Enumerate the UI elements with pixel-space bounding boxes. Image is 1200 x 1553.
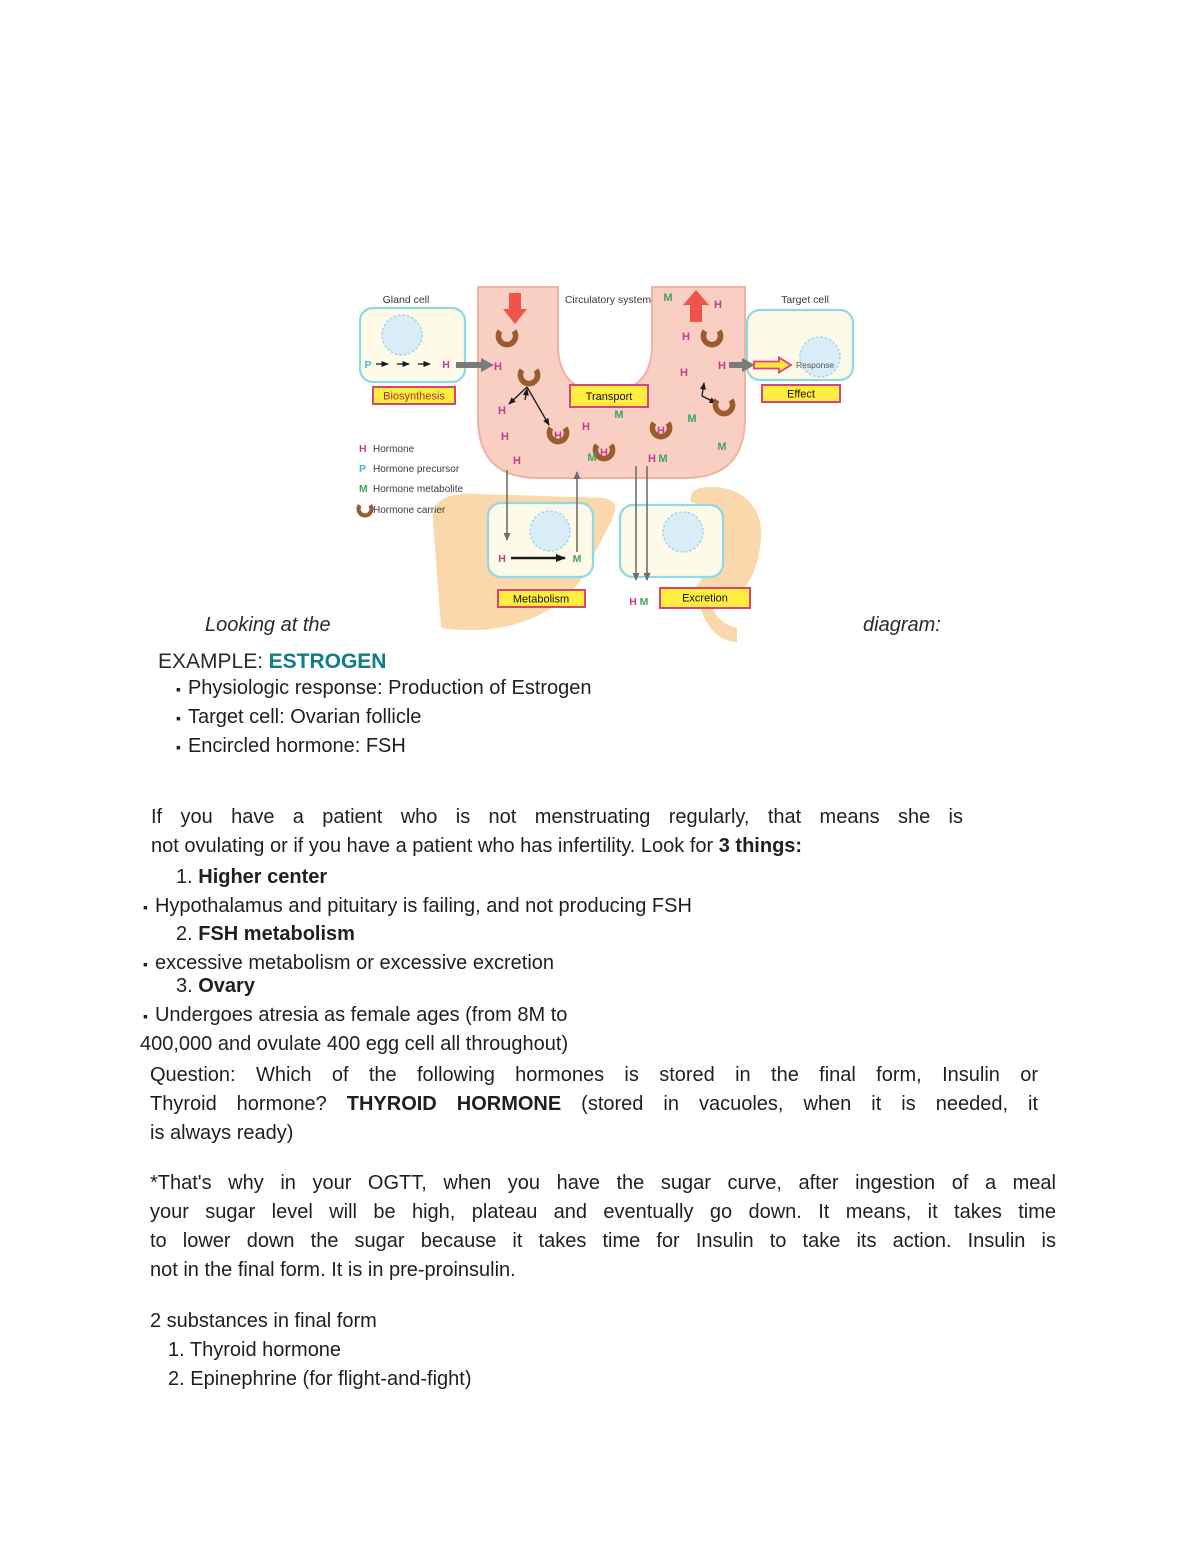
question-line-2: Thyroid hormone? THYROID HORMONE (stored… [150,1093,1038,1122]
gland-cell-nucleus [382,315,422,355]
target-cell-label: Target cell [781,294,829,306]
tube-letter-h: H [648,453,656,465]
example-bullet-2-text: Target cell: Ovarian follicle [188,706,421,728]
excretion-cell-nucleus [663,512,703,552]
list-item-higher-center: 1. Higher center [176,863,327,892]
precursor-letter: P [364,359,371,371]
effect-label: Effect [787,389,815,401]
bullet-marker: ▪ [176,739,188,755]
tube-letter-h: H [498,405,506,417]
final-form-item-2: 2. Epinephrine (for flight-and-fight) [168,1365,472,1394]
tube-letter-h: H [600,447,608,459]
legend-hormone-label: Hormone [373,444,415,455]
metabolism-box: Metabolism [498,590,585,607]
tube-letter-h: H [714,299,722,311]
target-cell-nucleus [800,337,840,377]
hormone-carrier-icon [359,505,372,515]
intro-line-2: not ovulating or if you have a patient w… [151,835,963,864]
thyroid-hormone-bold: THYROID HORMONE [347,1093,561,1115]
caption-right: diagram: [863,614,941,637]
excretion-box: Excretion [660,588,750,608]
legend-carrier-label: Hormone carrier [373,505,446,516]
ogtt-line-3: to lower down the sugar because it takes… [150,1230,1056,1259]
example-heading: EXAMPLE: ESTROGEN [158,647,386,677]
bullet-marker: ▪ [143,1008,155,1024]
detail-ovary-1: ▪Undergoes atresia as female ages (from … [143,1001,567,1031]
tube-letter-h: H [494,361,502,373]
list-item-fsh-metabolism: 2. FSH metabolism [176,920,355,949]
legend-metabolite-symbol: M [359,483,368,495]
tube-letter-h: H [513,455,521,467]
tube-letter-h: H [718,360,726,372]
legend-metabolite-label: Hormone metabolite [373,484,463,495]
example-bullet-1-text: Physiologic response: Production of Estr… [188,677,592,699]
detail-higher-center: ▪Hypothalamus and pituitary is failing, … [143,892,692,922]
final-form-title: 2 substances in final form [150,1307,377,1336]
item-number: 2. [176,923,193,945]
transport-label: Transport [586,391,633,403]
excretion-label: Excretion [682,593,728,605]
tube-letter-h: H [582,421,590,433]
transport-box: Transport [570,385,648,407]
metabolism-hormone-letter: H [498,553,506,565]
tube-letter-h: H [554,430,562,442]
metabolism-cell-nucleus [530,511,570,551]
legend-precursor-symbol: P [359,463,366,475]
example-bullet-3-text: Encircled hormone: FSH [188,735,406,757]
response-label: Response [796,360,835,370]
example-prefix: EXAMPLE: [158,650,263,673]
biosynthesis-label: Biosynthesis [383,391,445,403]
final-form-item-1: 1. Thyroid hormone [168,1336,341,1365]
question-paragraph: Question: Which of the following hormone… [150,1064,1038,1151]
list-item-ovary: 3. Ovary [176,972,255,1001]
intro-paragraph: If you have a patient who is not menstru… [151,806,963,864]
question-line-2-pre: Thyroid hormone? [150,1093,347,1115]
hormone-transport-diagram: Gland cell Circulatory system Target cel… [355,272,875,644]
item-number: 1. [176,866,193,888]
detail-text: Undergoes atresia as female ages (from 8… [155,1004,567,1026]
circulatory-system-label: Circulatory system [565,294,652,306]
question-line-3: is always ready) [150,1122,1038,1151]
legend-precursor-label: Hormone precursor [373,464,460,475]
excreted-metabolite-letter: M [640,596,649,608]
tube-letter-h: H [680,367,688,379]
ogtt-line-1: *That's why in your OGTT, when you have … [150,1172,1056,1201]
question-line-2-post: (stored in vacuoles, when it is needed, … [561,1093,1038,1115]
legend-hormone-symbol: H [359,443,367,455]
tube-letter-m: M [587,452,596,464]
ogtt-line-2: your sugar level will be high, plateau a… [150,1201,1056,1230]
detail-text: 400,000 and ovulate 400 egg cell all thr… [140,1033,568,1055]
tube-letter-h: H [682,331,690,343]
item-title: Ovary [198,975,255,997]
question-line-1: Question: Which of the following hormone… [150,1064,1038,1093]
caption-left: Looking at the [205,614,331,637]
bullet-marker: ▪ [176,681,188,697]
hormone-transport-diagram-svg: Gland cell Circulatory system Target cel… [355,272,875,644]
item-title: FSH metabolism [198,923,355,945]
tube-letter-m: M [717,441,726,453]
tube-letter-h: H [657,425,665,437]
ogtt-line-4: not in the final form. It is in pre-proi… [150,1259,1056,1288]
detail-text: Hypothalamus and pituitary is failing, a… [155,895,692,917]
tube-letter-h: H [501,431,509,443]
bullet-marker: ▪ [143,899,155,915]
effect-box: Effect [762,385,840,402]
example-bullet-1: ▪Physiologic response: Production of Est… [176,674,592,704]
gland-hormone-letter: H [442,359,450,371]
detail-ovary-2: 400,000 and ovulate 400 egg cell all thr… [140,1030,568,1059]
bullet-marker: ▪ [143,956,155,972]
metabolism-metabolite-letter: M [573,553,582,565]
gland-cell-label: Gland cell [383,294,430,306]
example-bullet-2: ▪Target cell: Ovarian follicle [176,703,421,733]
ogtt-paragraph: *That's why in your OGTT, when you have … [150,1172,1056,1288]
tube-letter-m: M [687,413,696,425]
tube-letter-m: M [614,409,623,421]
example-bullet-3: ▪Encircled hormone: FSH [176,732,406,762]
example-estrogen: ESTROGEN [269,650,387,673]
biosynthesis-box: Biosynthesis [373,387,455,404]
intro-line-1: If you have a patient who is not menstru… [151,806,963,835]
item-number: 3. [176,975,193,997]
excreted-hormone-letter: H [629,596,637,608]
item-title: Higher center [198,866,327,888]
document-page: Gland cell Circulatory system Target cel… [0,0,1200,1553]
metabolism-label: Metabolism [513,594,569,606]
tube-letter-m: M [663,292,672,304]
bullet-marker: ▪ [176,710,188,726]
intro-line-2-text: not ovulating or if you have a patient w… [151,835,719,857]
three-things-bold: 3 things: [719,835,802,857]
detail-text: excessive metabolism or excessive excret… [155,952,554,974]
tube-letter-m: M [658,453,667,465]
